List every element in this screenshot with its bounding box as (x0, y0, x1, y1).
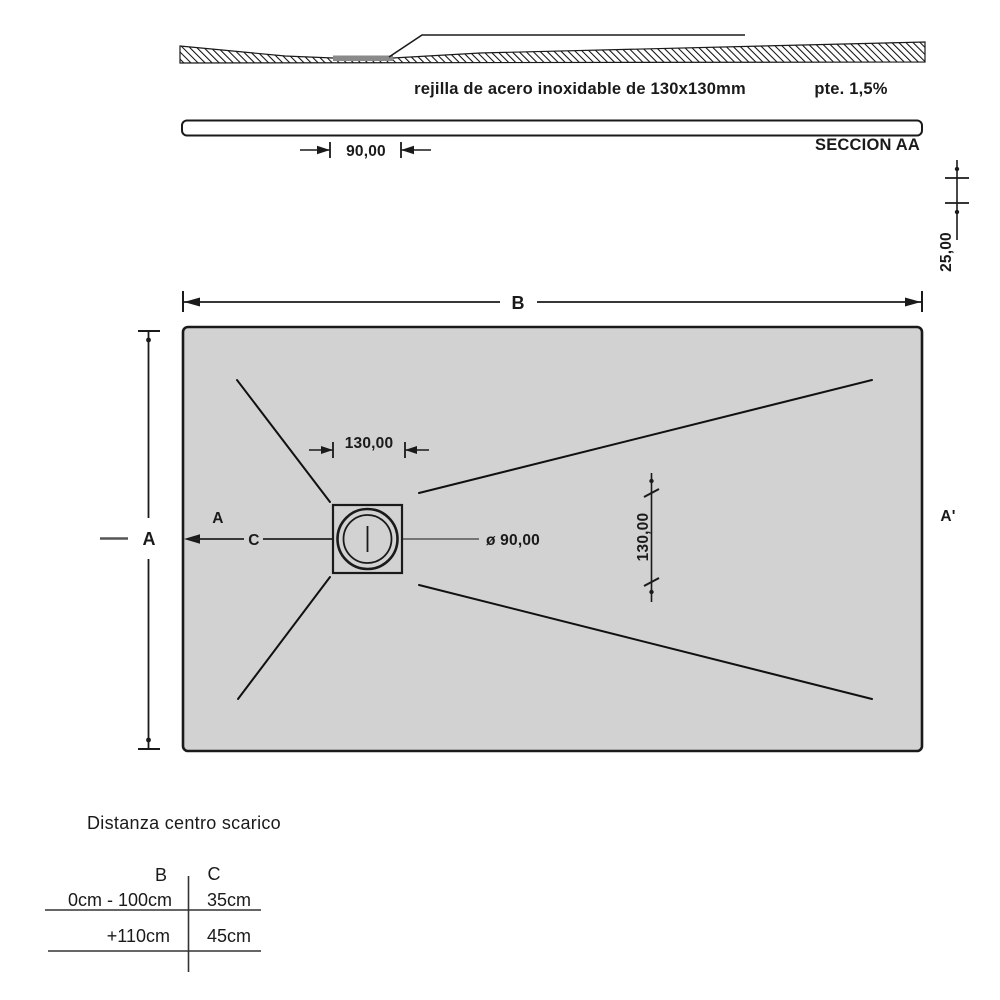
table-row2-b: +110cm (107, 926, 170, 946)
drain-height-dim-label: 130,00 (635, 513, 652, 562)
cut-center-label: C (248, 532, 259, 549)
table-title: Distanza centro scarico (87, 813, 281, 833)
shower-tray-technical-drawing: rejilla de acero inoxidable de 130x130mm… (0, 0, 1000, 1000)
cut-start-label: A (212, 510, 223, 527)
table-col2-header: C (208, 864, 221, 884)
thickness-dim-label: 25,00 (938, 232, 955, 272)
width-b-dimension: B (183, 291, 922, 313)
width-b-label: B (512, 293, 525, 313)
grate-note-label: rejilla de acero inoxidable de 130x130mm (414, 80, 746, 98)
section-base-bar (182, 121, 922, 136)
section-tray-hatched-body (180, 42, 925, 63)
section-view: rejilla de acero inoxidable de 130x130mm… (180, 35, 969, 272)
table-row: 0cm - 100cm 35cm (68, 890, 251, 910)
table-col1-header: B (155, 865, 167, 885)
section-grate (333, 56, 393, 62)
drain (333, 505, 402, 573)
plan-view: B A A C (100, 291, 956, 751)
table-row2-c: 45cm (207, 926, 251, 946)
distance-table: Distanza centro scarico B C 0cm - 100cm … (45, 813, 281, 972)
drain-diameter-label: ø 90,00 (486, 532, 540, 549)
table-row: +110cm 45cm (107, 926, 251, 946)
drain-offset-dimension: 90,00 (300, 142, 431, 160)
drain-offset-dim-label: 90,00 (346, 143, 386, 160)
height-a-dimension: A (138, 331, 160, 749)
slope-note-label: pte. 1,5% (814, 80, 887, 98)
thickness-dimension: 25,00 (938, 160, 969, 272)
section-title-label: SECCION AA (815, 136, 920, 154)
drain-width-dim-label: 130,00 (345, 435, 394, 452)
table-row1-c: 35cm (207, 890, 251, 910)
table-row1-b: 0cm - 100cm (68, 890, 172, 910)
cut-end-label: A' (940, 508, 955, 525)
drawing-canvas: rejilla de acero inoxidable de 130x130mm… (0, 0, 1000, 1000)
height-a-label: A (143, 529, 156, 549)
